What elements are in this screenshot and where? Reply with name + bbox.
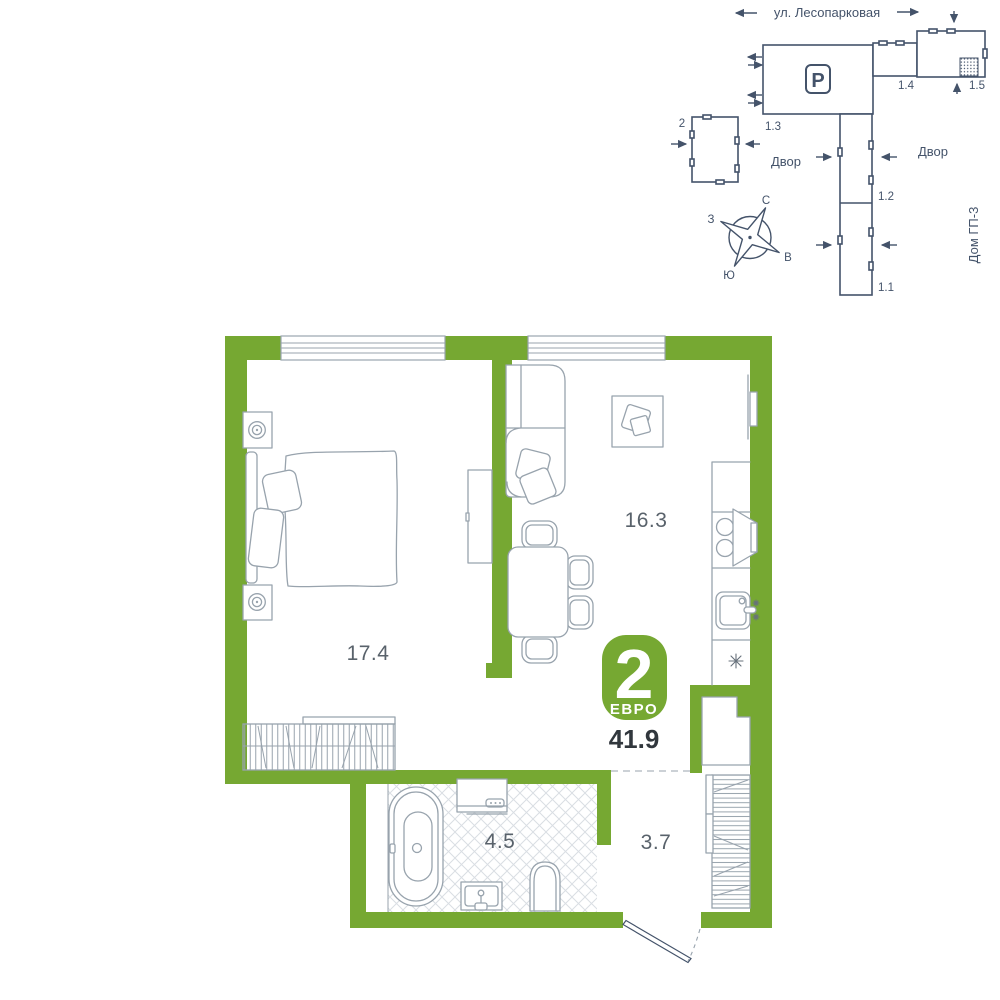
counter-lines xyxy=(712,462,750,685)
wall-niche-top xyxy=(690,685,772,697)
wall-bottom-right xyxy=(701,912,772,928)
facade-notch xyxy=(735,137,739,144)
floor-plan: 17.4 16.3 4.5 3.7 2 ЕВРО 41.9 xyxy=(225,336,772,963)
building-2-label: 2 xyxy=(679,118,685,130)
courtyard-left-label: Двор xyxy=(771,154,801,169)
wall-niche-left xyxy=(690,685,702,773)
tap-handle-icon xyxy=(753,600,759,606)
toilet xyxy=(530,862,560,911)
double-bed xyxy=(246,451,397,587)
pillow xyxy=(248,507,285,568)
wardrobe-shelf xyxy=(303,717,395,724)
facade-notch xyxy=(869,228,873,236)
building-residential-strip: 1.2 1.1 xyxy=(816,114,897,295)
floorplan-page: ул. Лесопарковая P 1.3 1.4 xyxy=(0,0,1000,1000)
bathtub xyxy=(389,787,443,906)
courtyard-right-label: Двор xyxy=(918,144,948,159)
wardrobe-panel xyxy=(706,814,713,853)
apartment-floorplan-svg: ул. Лесопарковая P 1.3 1.4 xyxy=(0,0,1000,1000)
strip-outline xyxy=(840,114,872,295)
pedestal xyxy=(475,903,487,910)
hallway-area-label: 3.7 xyxy=(641,831,672,854)
rug-pillow xyxy=(630,415,651,436)
window-living xyxy=(528,336,665,360)
building-1-5: 1.5 xyxy=(917,11,987,94)
facade-notch xyxy=(690,159,694,166)
door-leaf xyxy=(623,921,691,963)
facade-notch xyxy=(869,262,873,270)
fridge-spot-icon xyxy=(729,654,743,668)
bedroom-wardrobe xyxy=(243,717,395,770)
burner-icon xyxy=(717,519,734,536)
building-13-label: 1.3 xyxy=(765,121,781,133)
nightstand-top xyxy=(243,412,272,448)
building-2-outline xyxy=(692,117,738,182)
compass-west-label: З xyxy=(708,214,715,226)
facade-notch xyxy=(879,41,887,45)
building-12-label: 1.2 xyxy=(878,191,894,203)
facade-notch xyxy=(838,236,842,244)
bedroom-area-label: 17.4 xyxy=(347,642,390,665)
wall-partition-cap xyxy=(486,663,492,678)
facade-notch xyxy=(947,29,955,33)
building-14-label: 1.4 xyxy=(898,80,915,92)
floor-rug xyxy=(612,396,663,447)
building-15-label: 1.5 xyxy=(969,80,985,92)
wall-bath-right xyxy=(597,784,611,845)
parking-icon-letter: P xyxy=(811,70,824,92)
site-plan: ул. Лесопарковая P 1.3 1.4 xyxy=(671,5,987,295)
facade-notch xyxy=(869,176,873,184)
building-1-4: 1.4 xyxy=(873,41,917,92)
facade-notch xyxy=(929,29,937,33)
burner-icon xyxy=(717,540,734,557)
washing-machine xyxy=(457,779,507,814)
faucet-icon xyxy=(744,607,756,613)
facade-notch xyxy=(716,180,724,184)
dining-set xyxy=(508,521,593,663)
facade-notch xyxy=(690,131,694,138)
facade-notch xyxy=(703,115,711,119)
parking-entry-arrows xyxy=(748,57,762,103)
building-14-outline xyxy=(873,43,917,76)
bedroom-furniture xyxy=(243,412,492,770)
wall-mid-horizontal xyxy=(225,770,611,784)
compass-center-dot xyxy=(748,236,751,239)
corner-sofa xyxy=(506,365,565,506)
tv-icon xyxy=(750,392,757,426)
compass: С В Ю З xyxy=(708,195,793,282)
wall-niche-block xyxy=(737,697,772,717)
dresser-handle xyxy=(466,513,469,521)
facade-notch xyxy=(838,148,842,156)
house-gp3-label: Дом ГП-3 xyxy=(966,207,981,264)
bathroom-area-label: 4.5 xyxy=(485,830,516,853)
bath-sink xyxy=(461,882,502,910)
wall-bath-left xyxy=(350,784,366,928)
compass-north-label: С xyxy=(762,195,770,207)
hallway-furniture xyxy=(611,771,750,908)
wall-left xyxy=(225,336,247,784)
street-label: ул. Лесопарковая xyxy=(774,5,880,20)
pillow xyxy=(261,469,303,515)
kitchen-living-area-label: 16.3 xyxy=(625,509,668,532)
nightstand-bottom xyxy=(243,585,272,620)
badge-type-label: ЕВРО xyxy=(610,701,658,718)
building-2: 2 xyxy=(671,115,760,184)
window-bedroom xyxy=(281,336,445,360)
tap-handle-icon xyxy=(753,614,759,620)
facade-notch xyxy=(869,141,873,149)
wall-bottom-left xyxy=(350,912,623,928)
entrance-door xyxy=(623,921,700,963)
current-section-marker xyxy=(960,58,978,76)
total-area-label: 41.9 xyxy=(609,724,660,754)
facade-notch xyxy=(896,41,904,45)
compass-east-label: В xyxy=(784,252,792,264)
apartment-badge: 2 ЕВРО xyxy=(602,635,667,720)
dining-table xyxy=(508,547,568,637)
tap-icon xyxy=(390,844,395,853)
hall-wardrobe xyxy=(712,775,750,908)
facade-notch xyxy=(983,49,987,58)
door-swing-arc xyxy=(688,929,700,961)
dresser xyxy=(466,470,492,563)
wardrobe-panel xyxy=(706,775,713,814)
blanket xyxy=(285,451,398,587)
compass-south-label: Ю xyxy=(723,270,735,282)
building-11-label: 1.1 xyxy=(878,282,894,294)
facade-notch xyxy=(735,165,739,172)
